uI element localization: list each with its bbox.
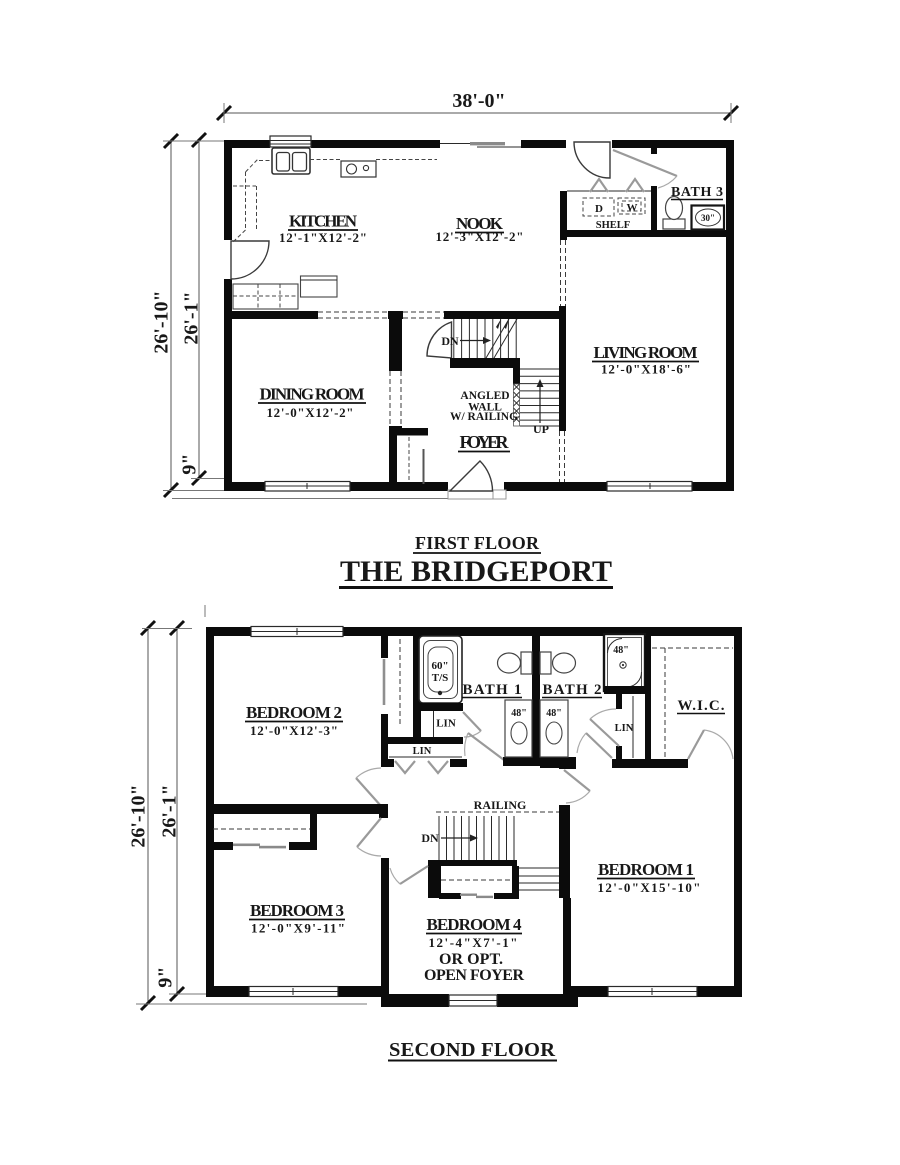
- svg-text:48": 48": [511, 708, 527, 719]
- svg-text:SECOND FLOOR: SECOND FLOOR: [389, 1039, 555, 1061]
- svg-text:12'-0"X9'-11": 12'-0"X9'-11": [251, 921, 345, 936]
- svg-text:12'-0"X12'-3": 12'-0"X12'-3": [250, 723, 338, 738]
- svg-text:BEDROOM 4: BEDROOM 4: [427, 915, 523, 934]
- svg-text:W/ RAILING: W/ RAILING: [450, 411, 518, 423]
- svg-text:BEDROOM 1: BEDROOM 1: [598, 860, 694, 879]
- svg-text:RAILING: RAILING: [474, 798, 527, 812]
- svg-text:12'-0"X12'-2": 12'-0"X12'-2": [267, 405, 354, 420]
- svg-text:30": 30": [701, 213, 715, 223]
- svg-text:BATH 3: BATH 3: [671, 185, 723, 200]
- svg-text:BEDROOM 2: BEDROOM 2: [246, 703, 342, 722]
- svg-text:LIVING ROOM: LIVING ROOM: [594, 343, 698, 362]
- svg-text:12'-1"X12'-2": 12'-1"X12'-2": [279, 230, 367, 245]
- svg-text:LIN: LIN: [436, 718, 456, 730]
- svg-text:UP: UP: [533, 422, 549, 436]
- svg-text:BATH 1: BATH 1: [463, 682, 522, 698]
- svg-text:D: D: [595, 203, 603, 215]
- svg-text:FOYER: FOYER: [460, 432, 510, 452]
- svg-text:W.I.C.: W.I.C.: [678, 698, 725, 714]
- svg-text:12'-4"X7'-1": 12'-4"X7'-1": [429, 935, 518, 950]
- svg-text:DINING ROOM: DINING ROOM: [260, 385, 365, 404]
- svg-text:9": 9": [179, 453, 201, 474]
- svg-text:26'-10": 26'-10": [128, 784, 150, 847]
- svg-text:LIN: LIN: [413, 746, 432, 757]
- svg-text:W: W: [627, 202, 638, 214]
- svg-text:26'-10": 26'-10": [151, 290, 173, 353]
- svg-text:LIN: LIN: [615, 723, 634, 734]
- svg-text:OR OPT.: OR OPT.: [439, 951, 503, 968]
- svg-text:BEDROOM 3: BEDROOM 3: [250, 901, 344, 920]
- svg-text:SHELF: SHELF: [596, 220, 630, 231]
- svg-text:9": 9": [155, 966, 177, 987]
- svg-text:THE BRIDGEPORT: THE BRIDGEPORT: [340, 555, 612, 588]
- svg-text:FIRST FLOOR: FIRST FLOOR: [415, 533, 540, 553]
- svg-text:DN: DN: [421, 831, 439, 845]
- svg-text:KITCHEN: KITCHEN: [289, 212, 358, 231]
- svg-text:OPEN FOYER: OPEN FOYER: [424, 967, 524, 984]
- svg-text:48": 48": [613, 645, 629, 656]
- svg-text:60": 60": [431, 660, 448, 672]
- svg-text:38'-0": 38'-0": [452, 90, 505, 112]
- svg-text:T/S: T/S: [432, 672, 449, 684]
- svg-text:12'-3"X12'-2": 12'-3"X12'-2": [436, 229, 524, 244]
- svg-text:DN: DN: [441, 334, 459, 348]
- svg-text:12'-0"X15'-10": 12'-0"X15'-10": [598, 880, 701, 895]
- svg-text:ANGLED: ANGLED: [460, 390, 509, 402]
- svg-text:12'-0"X18'-6": 12'-0"X18'-6": [601, 362, 691, 377]
- svg-text:BATH 2: BATH 2: [543, 682, 602, 698]
- svg-text:48": 48": [546, 708, 562, 719]
